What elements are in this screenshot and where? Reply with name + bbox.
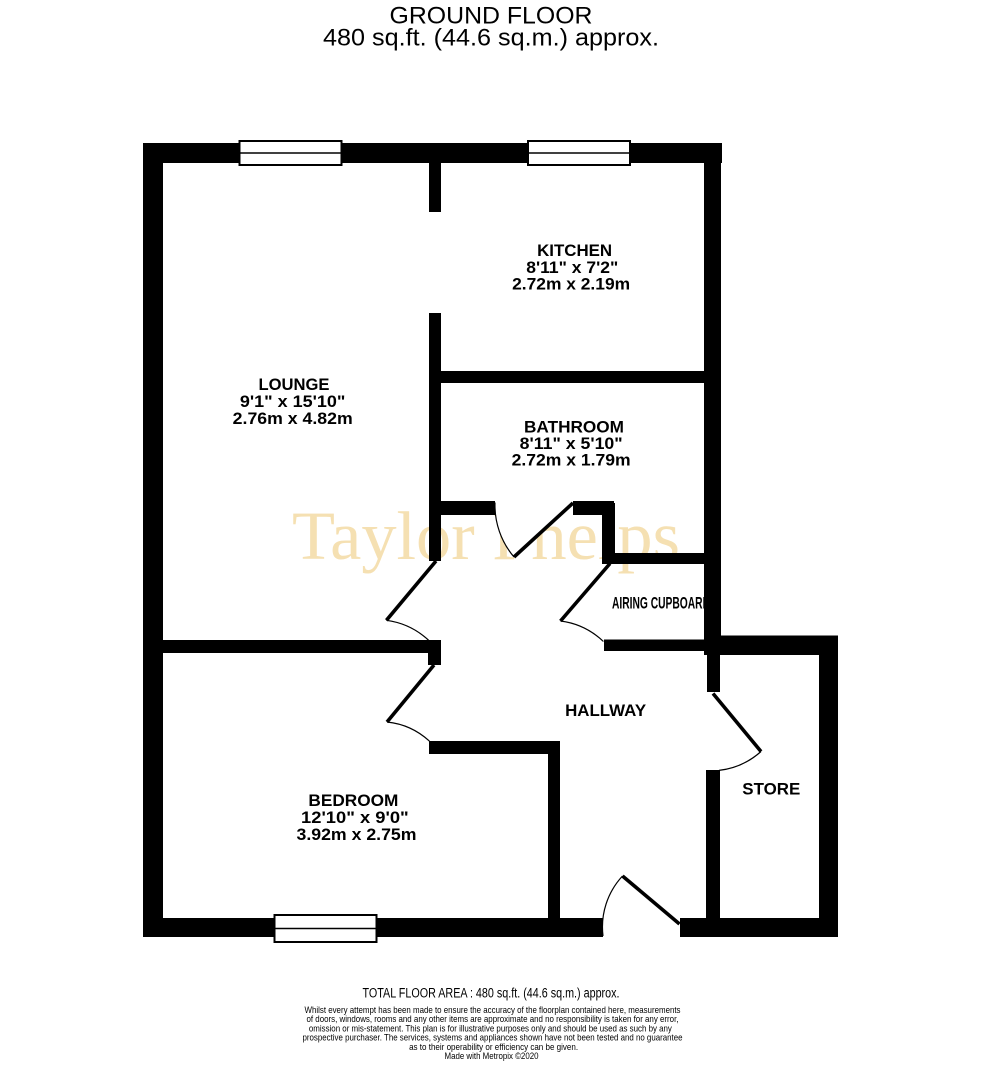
svg-text:TOTAL FLOOR AREA : 480 sq.ft.: TOTAL FLOOR AREA : 480 sq.ft. (44.6 sq.m… xyxy=(363,986,620,1001)
svg-text:2.72m x 1.79m: 2.72m x 1.79m xyxy=(512,451,631,470)
svg-text:480 sq.ft. (44.6 sq.m.) approx: 480 sq.ft. (44.6 sq.m.) approx. xyxy=(323,25,659,52)
svg-text:2.72m x 2.19m: 2.72m x 2.19m xyxy=(512,275,630,294)
svg-text:Made with Metropix ©2020: Made with Metropix ©2020 xyxy=(445,1051,539,1061)
svg-text:2.76m x 4.82m: 2.76m x 4.82m xyxy=(233,409,353,428)
svg-text:STORE: STORE xyxy=(742,780,800,799)
svg-text:3.92m x 2.75m: 3.92m x 2.75m xyxy=(297,825,417,844)
svg-text:HALLWAY: HALLWAY xyxy=(565,701,647,720)
svg-text:AIRING CUPBOARD: AIRING CUPBOARD xyxy=(612,594,710,613)
